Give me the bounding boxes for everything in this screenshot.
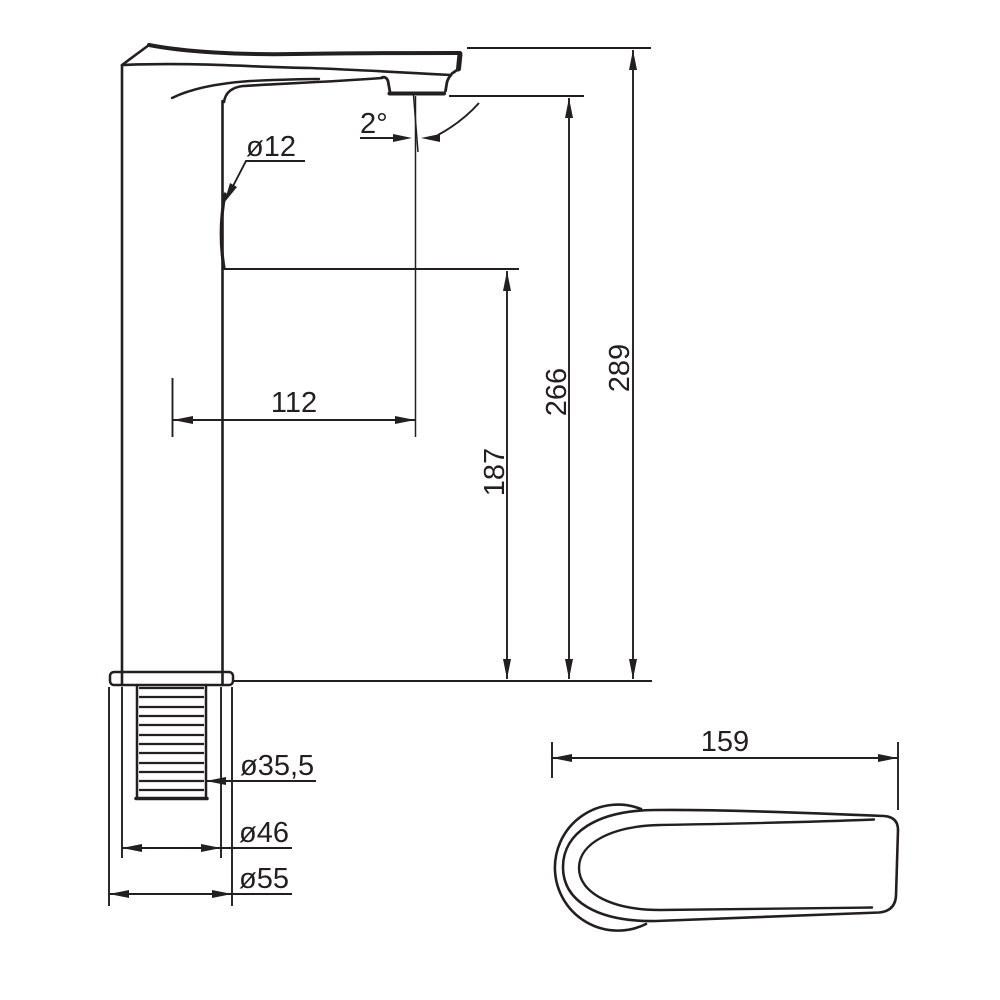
arrowhead-left-icon — [552, 754, 572, 762]
top-view-handle — [555, 805, 898, 931]
dim-289: 289 — [234, 48, 652, 681]
body-top-left-bevel — [122, 45, 149, 65]
handle-inner-contour — [579, 820, 874, 911]
angle-label: 2° — [360, 108, 388, 140]
dim-159: 159 — [552, 726, 898, 810]
dim-dia35-5: ø35,5 — [206, 750, 316, 785]
angle-arc — [438, 103, 479, 135]
spout-front-edge — [123, 64, 451, 75]
arrowhead-right-icon — [878, 754, 898, 762]
dim-266: 266 — [449, 96, 584, 679]
spout-tip-face — [459, 54, 461, 69]
arrowhead-left-icon — [206, 777, 226, 785]
faucet-dimension-drawing: 2° ø12 112 187 266 289 — [0, 0, 1000, 1000]
dim159-label: 159 — [701, 726, 749, 758]
spout-top-edge — [149, 45, 460, 54]
dim266-label: 266 — [541, 368, 573, 416]
arrowhead-left-icon — [109, 890, 129, 898]
arrowhead-right-icon — [393, 134, 412, 142]
thread-hatching — [139, 688, 204, 790]
arrowhead-left-icon — [421, 134, 440, 142]
aerator-left-side — [382, 77, 390, 92]
arrowhead-up-icon — [565, 98, 573, 118]
arrowhead-up-icon — [503, 271, 511, 291]
arrowhead-down-icon — [629, 659, 637, 679]
arrowhead-right-icon — [395, 416, 415, 424]
handle-escutcheon-arc — [555, 805, 646, 931]
spout-tip-step — [452, 69, 459, 74]
arrowhead-right-icon — [201, 844, 221, 852]
arrowhead-down-icon — [503, 659, 511, 679]
dim-112: 112 — [173, 378, 416, 437]
dia46-label: ø46 — [239, 817, 289, 849]
dia55-label: ø55 — [239, 863, 289, 895]
dia12-label: ø12 — [246, 131, 296, 163]
dia12-leader-line — [231, 161, 305, 190]
arrowhead-down-icon — [565, 659, 573, 679]
aerator-right-side — [446, 75, 452, 91]
dim-187: 187 — [223, 269, 519, 679]
dia355-label: ø35,5 — [240, 750, 314, 782]
arrowhead-up-icon — [629, 50, 637, 70]
technical-drawing-canvas: 2° ø12 112 187 266 289 — [0, 0, 1000, 1000]
dia55-extension-lines — [109, 687, 232, 906]
base-plate — [110, 672, 233, 685]
dim187-label: 187 — [479, 448, 511, 496]
dim-dia12: ø12 — [224, 131, 305, 203]
dim112-label: 112 — [271, 387, 317, 419]
arrowhead-right-icon — [212, 890, 232, 898]
arrowhead-left-icon — [122, 844, 142, 852]
arrowhead-left-icon — [173, 416, 193, 424]
dim-angle-2deg: 2° — [360, 95, 479, 437]
dim289-label: 289 — [604, 344, 636, 392]
